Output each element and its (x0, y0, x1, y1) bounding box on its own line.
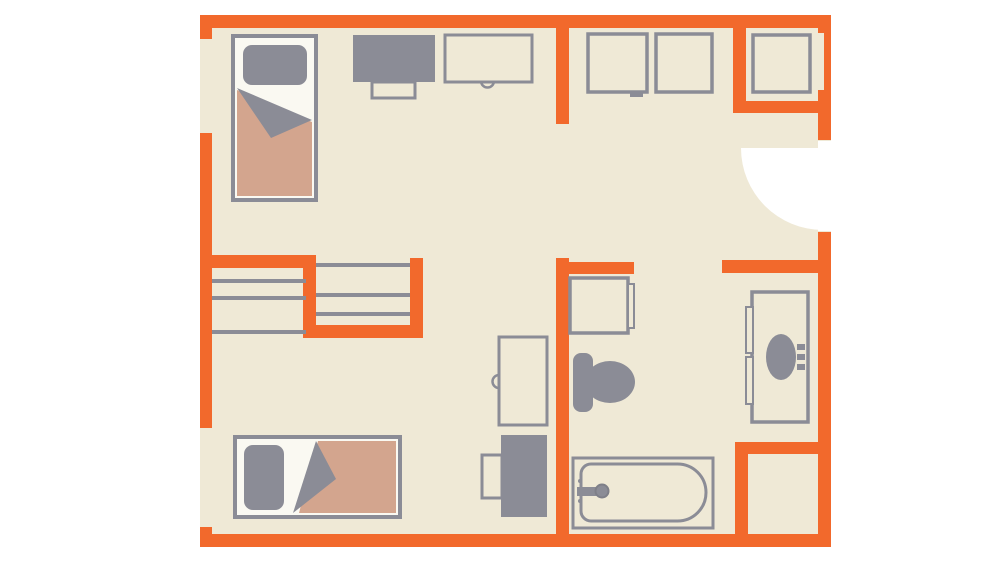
bathtub-knob (596, 485, 609, 498)
cabinet-2 (656, 34, 712, 92)
wall-closet-north (200, 255, 316, 268)
closet-shelf-right-2 (316, 293, 410, 297)
closet-shelf-left-2 (212, 296, 306, 300)
entry-door-opening (818, 141, 831, 231)
wall-closet-south (303, 325, 423, 338)
closet-shelf-left-3 (212, 330, 306, 334)
sink-faucet-3 (797, 364, 805, 370)
washer-door (628, 284, 634, 328)
closet-shelf-right-3 (316, 312, 410, 316)
closet-shelf-left-1 (212, 279, 306, 283)
sink-faucet-2 (797, 354, 805, 360)
desk-2 (499, 337, 547, 425)
sink-faucet-1 (797, 344, 805, 350)
floor-plan (0, 0, 1000, 563)
toilet-bowl (585, 361, 635, 403)
dresser-2 (501, 435, 547, 517)
wall-left-main (200, 133, 212, 428)
wall-closet-east (410, 258, 423, 338)
vanity-door-upper (746, 307, 753, 353)
dresser-top (353, 35, 435, 82)
wall-entry-south (722, 260, 831, 273)
sink-basin (766, 334, 796, 380)
bed-1-pillow (243, 45, 307, 85)
bathtub-faucet (577, 487, 597, 496)
wall-shaft-west (735, 442, 748, 547)
cabinet-1 (588, 34, 647, 92)
hall-closet-unit (753, 35, 810, 92)
desk-1 (445, 35, 532, 82)
bathtub-dot-lower (578, 499, 582, 503)
cabinet-1-latch (630, 92, 643, 97)
wall-hall-closet-south (733, 101, 831, 113)
wall-right-lower (818, 232, 831, 547)
window-notch (818, 33, 824, 90)
wall-bedroom-east (556, 28, 569, 124)
floor-plan-canvas (0, 0, 1000, 563)
washer (570, 278, 628, 333)
vanity-door-lower (746, 357, 753, 404)
wall-bathroom-west (556, 258, 569, 547)
wall-hall-closet-west (733, 15, 746, 113)
wall-bathroom-north-stub (556, 262, 634, 274)
desk-2-chair (482, 455, 502, 498)
closet-shelf-right-1 (316, 263, 410, 267)
dresser-stool (372, 82, 415, 98)
bathtub-dot-upper (578, 479, 582, 483)
wall-shaft-north (735, 442, 831, 454)
bed-2-pillow (244, 445, 284, 510)
wall-left-door-jamb-upper (200, 28, 212, 39)
